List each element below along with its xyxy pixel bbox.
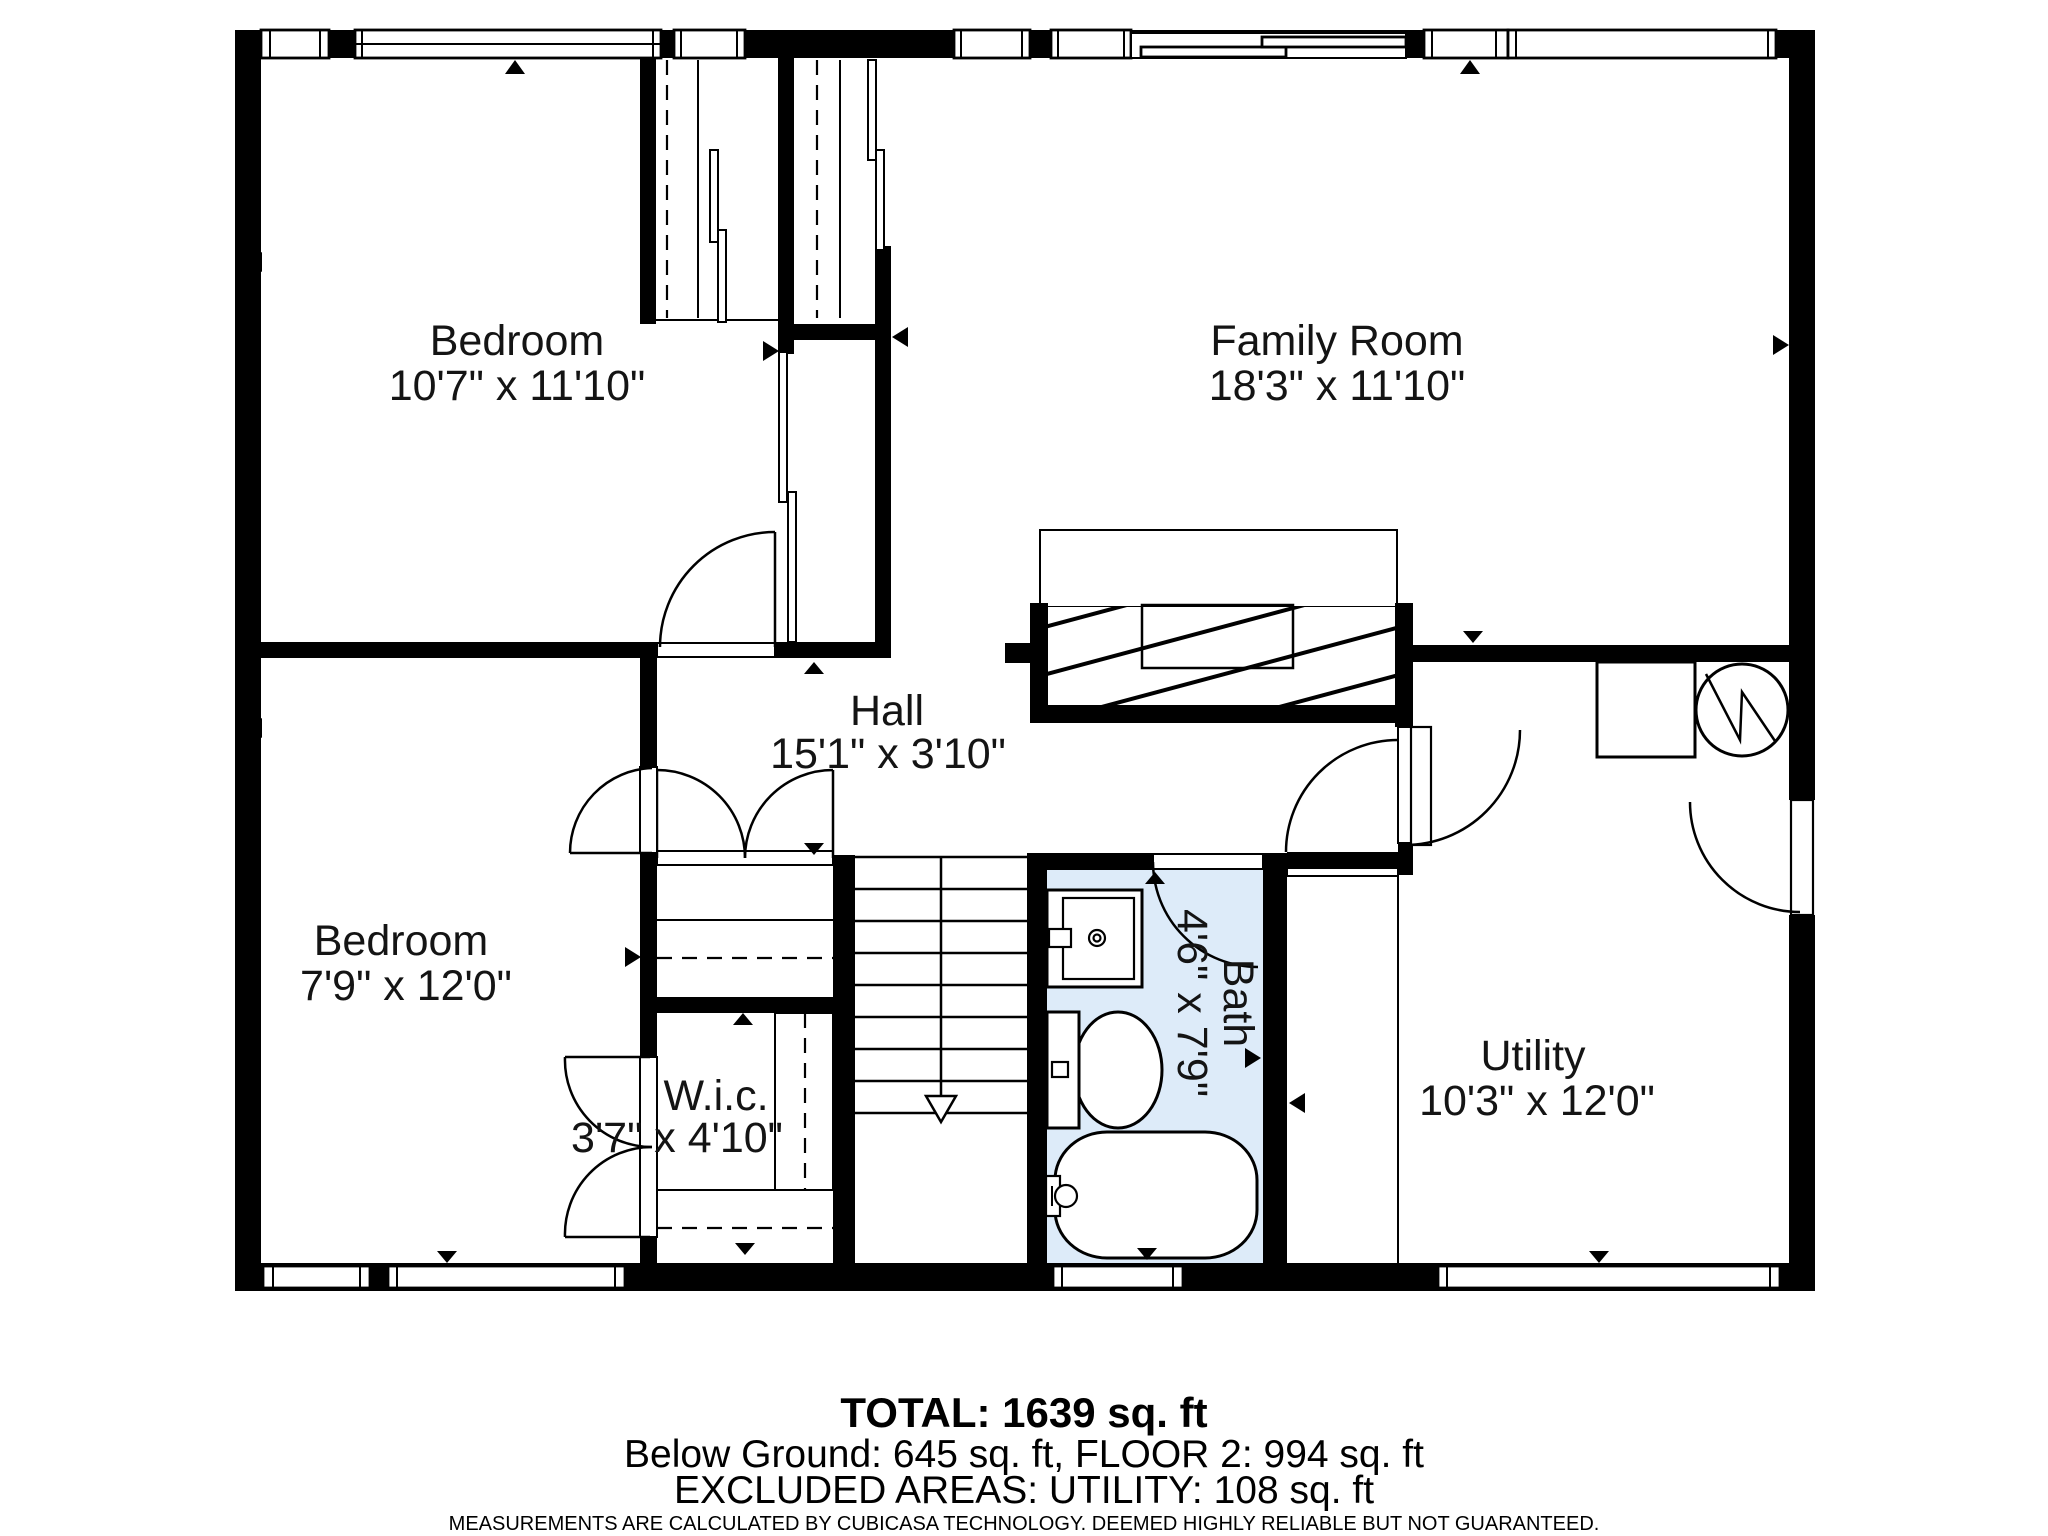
stairs xyxy=(855,857,1027,1122)
floor-plan-svg: Bedroom 10'7" x 11'10" Family Room 18'3"… xyxy=(0,0,2048,1536)
floor-plan-page: Bedroom 10'7" x 11'10" Family Room 18'3"… xyxy=(0,0,2048,1536)
room-dims-bath: 4'6" x 7'9" xyxy=(1168,909,1216,1097)
room-label-bath: Bath xyxy=(1214,959,1262,1047)
windows-top xyxy=(261,30,1776,58)
room-dims-family-room: 18'3" x 11'10" xyxy=(1209,362,1466,410)
sliding-patio-door xyxy=(1131,33,1406,58)
toilet-icon xyxy=(1047,1012,1162,1128)
hall-closet xyxy=(657,920,833,958)
water-heater-icon xyxy=(1597,662,1695,757)
room-dims-bedroom-2: 7'9" x 12'0" xyxy=(300,962,512,1010)
disclaimer-text: MEASUREMENTS ARE CALCULATED BY CUBICASA … xyxy=(449,1513,1600,1535)
room-label-family-room: Family Room xyxy=(1210,317,1463,365)
room-label-wic: W.i.c. xyxy=(663,1072,768,1120)
room-label-utility: Utility xyxy=(1480,1032,1586,1080)
room-label-bedroom-1: Bedroom xyxy=(430,317,604,365)
room-dims-utility: 10'3" x 12'0" xyxy=(1419,1077,1655,1125)
room-label-hall: Hall xyxy=(850,687,924,735)
electrical-meter-icon xyxy=(1696,664,1788,756)
room-label-bedroom-2: Bedroom xyxy=(314,917,488,965)
bathtub-icon xyxy=(1046,1132,1257,1258)
room-labels: Bedroom 10'7" x 11'10" Family Room 18'3"… xyxy=(300,317,1655,1162)
alcove-opening xyxy=(1287,868,1398,1263)
fireplace-icon xyxy=(1040,530,1397,705)
total-area-text: TOTAL: 1639 sq. ft xyxy=(840,1389,1207,1436)
excluded-areas-text: EXCLUDED AREAS: UTILITY: 108 sq. ft xyxy=(674,1469,1374,1512)
room-dims-bedroom-1: 10'7" x 11'10" xyxy=(389,362,646,410)
footer: TOTAL: 1639 sq. ft Below Ground: 645 sq.… xyxy=(449,1389,1600,1535)
sink-icon xyxy=(1047,890,1142,987)
utility-fixtures xyxy=(1597,662,1788,757)
stairs-down-arrow-icon xyxy=(926,1096,956,1122)
room-dims-wic: 3'7" x 4'10" xyxy=(571,1114,783,1162)
room-dims-hall: 15'1" x 3'10" xyxy=(770,730,1006,778)
